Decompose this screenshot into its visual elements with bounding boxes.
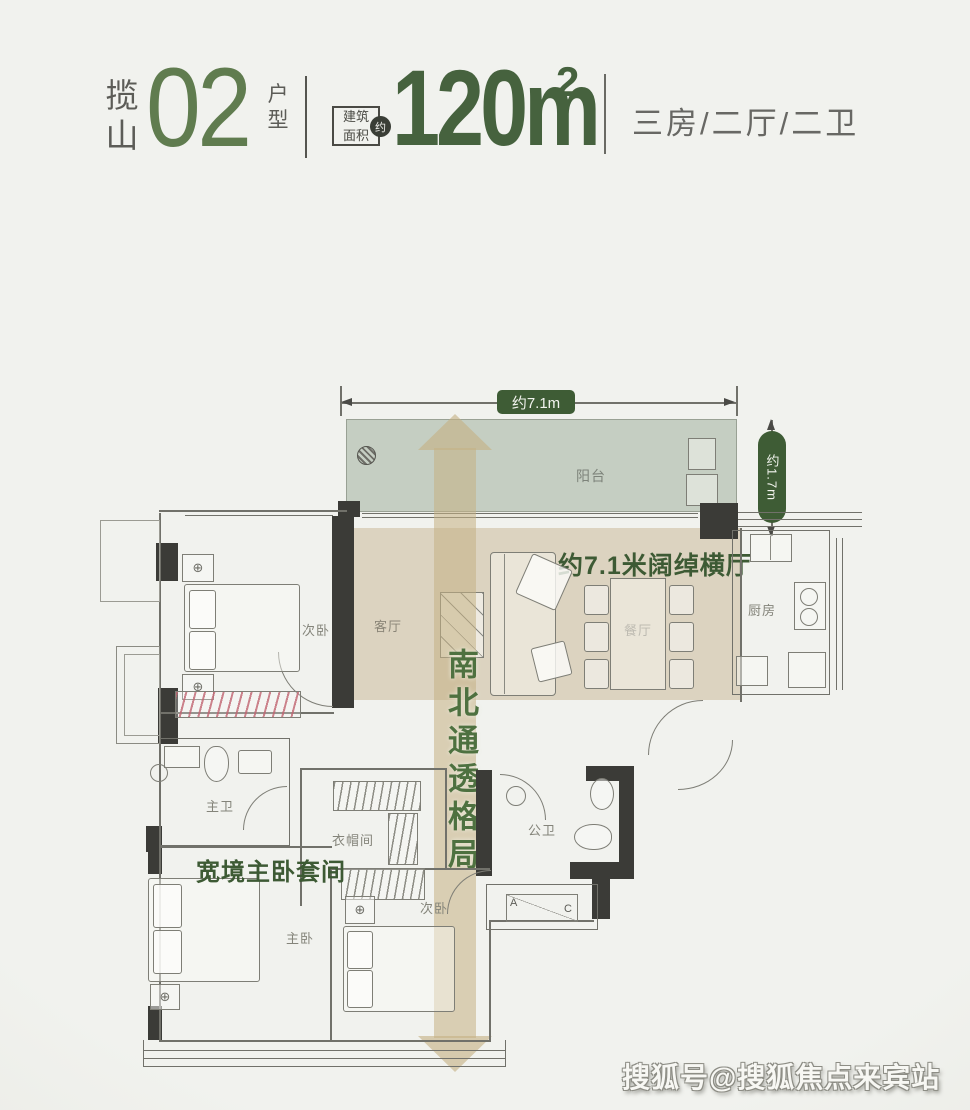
dining-chair bbox=[584, 585, 609, 615]
watermark: 搜狐号@搜狐焦点来宾站 bbox=[622, 1056, 940, 1096]
wide-hall-note: 约7.1米阔绰横厅 bbox=[558, 546, 752, 582]
drain-icon bbox=[357, 446, 376, 465]
kitchen-bay-line-2 bbox=[737, 519, 862, 520]
washer-2 bbox=[686, 474, 718, 506]
burner-icon bbox=[800, 608, 818, 626]
kitchen-window-line bbox=[836, 538, 837, 690]
dim-arrow-up-icon bbox=[767, 419, 775, 430]
brand-char-1: 揽 bbox=[103, 76, 141, 116]
brand-char-2: 山 bbox=[103, 116, 141, 156]
header-divider-2 bbox=[604, 74, 606, 154]
dining-table bbox=[610, 578, 666, 690]
kitchen-bay-line-1 bbox=[737, 512, 862, 513]
washer bbox=[688, 438, 716, 470]
master-bath-label: 主卫 bbox=[206, 796, 234, 815]
dining-chair bbox=[584, 622, 609, 652]
kitchen-sink bbox=[750, 534, 792, 562]
bay-window-line bbox=[143, 1058, 505, 1059]
public-bath-label: 公卫 bbox=[528, 820, 556, 839]
basin-icon bbox=[590, 778, 614, 810]
toilet bbox=[204, 746, 229, 782]
approx-badge: 约 bbox=[370, 116, 391, 137]
dim-right-text: 约1.7m bbox=[763, 454, 782, 501]
living-label: 客厅 bbox=[374, 616, 402, 635]
dining-chair bbox=[584, 659, 609, 689]
bed-pillow bbox=[189, 590, 216, 629]
dining-chair bbox=[669, 622, 694, 652]
balcony-label: 阳台 bbox=[576, 466, 606, 486]
wall-line bbox=[445, 768, 447, 870]
window-line bbox=[185, 515, 333, 516]
bay-window-cap bbox=[505, 1040, 506, 1067]
wall bbox=[338, 501, 360, 517]
basin bbox=[238, 750, 272, 774]
wall-line bbox=[330, 868, 332, 1040]
kitchen-cabinet bbox=[736, 656, 768, 686]
kitchen-window-line bbox=[842, 538, 843, 690]
bedroom-top-label: 次卧 bbox=[302, 620, 330, 639]
master-suite-note: 宽境主卧套间 bbox=[196, 852, 346, 887]
dim-arrow-left-icon bbox=[341, 398, 352, 406]
unit-type-char-1: 户 bbox=[266, 82, 290, 108]
bed-pillow bbox=[153, 884, 182, 928]
step-detail bbox=[100, 520, 160, 602]
unit-number: 02 bbox=[146, 52, 249, 164]
bay-window-line bbox=[143, 1050, 505, 1051]
bed-pillow bbox=[189, 631, 216, 670]
dining-chair bbox=[669, 659, 694, 689]
burner-icon bbox=[800, 588, 818, 606]
wardrobe-hatch bbox=[175, 691, 301, 718]
unit-type-label: 户 型 bbox=[266, 82, 290, 135]
cloakroom-label: 衣帽间 bbox=[332, 830, 374, 849]
dim-right-pill: 约1.7m bbox=[758, 431, 786, 523]
toilet bbox=[574, 824, 612, 850]
nightstand: ⊕ bbox=[182, 554, 214, 582]
header-divider-1 bbox=[305, 76, 307, 158]
header: 揽 山 02 户 型 建筑 面积 约 120m 2 三房/二厅/二卫 bbox=[0, 0, 970, 210]
kitchen-bay-line-3 bbox=[737, 526, 862, 527]
floorplan-page: 揽 山 02 户 型 建筑 面积 约 120m 2 三房/二厅/二卫 约7.1m… bbox=[0, 0, 970, 1110]
wall-line bbox=[489, 920, 491, 1041]
dining-chair bbox=[669, 585, 694, 615]
ac-label-a: A bbox=[510, 897, 517, 909]
ac-label-c: C bbox=[564, 903, 572, 915]
dim-ext-right bbox=[736, 386, 738, 416]
shower-icon bbox=[506, 786, 526, 806]
balcony-door-line-1 bbox=[362, 513, 698, 514]
vanity bbox=[164, 746, 200, 768]
wall-line bbox=[300, 768, 446, 770]
wall bbox=[570, 862, 634, 879]
wall bbox=[332, 516, 354, 708]
kitchen-label: 厨房 bbox=[748, 600, 776, 619]
layout-summary: 三房/二厅/二卫 bbox=[632, 98, 859, 143]
wall-line bbox=[160, 846, 332, 848]
shower-icon bbox=[150, 764, 168, 782]
bedroom-mid-label: 次卧 bbox=[420, 898, 448, 917]
bed-pillow bbox=[153, 930, 182, 974]
balcony-door-line-2 bbox=[362, 517, 698, 518]
kitchen-cabinet bbox=[788, 652, 826, 688]
bay-window-line bbox=[143, 1066, 505, 1067]
nightstand: ⊕ bbox=[345, 896, 375, 924]
bay-window-cap bbox=[143, 1040, 144, 1067]
sofa-back-line bbox=[504, 554, 505, 694]
dim-arrow-right-icon bbox=[724, 398, 735, 406]
master-bedroom-label: 主卧 bbox=[286, 928, 314, 947]
shaft-detail bbox=[124, 654, 160, 736]
entry-door-arc bbox=[678, 740, 733, 790]
brand-name: 揽 山 bbox=[103, 76, 141, 157]
wall-line bbox=[159, 510, 347, 512]
area-value: 120m bbox=[392, 54, 648, 162]
bed-pillow bbox=[347, 931, 373, 969]
wardrobe-hatch bbox=[388, 813, 418, 865]
area-sup: 2 bbox=[556, 58, 579, 106]
wardrobe-hatch bbox=[333, 781, 421, 811]
bed-pillow bbox=[347, 970, 373, 1008]
unit-type-char-2: 型 bbox=[266, 108, 290, 134]
wall bbox=[476, 770, 492, 876]
ns-arrow-up-icon bbox=[418, 414, 492, 450]
dim-top-pill: 约7.1m bbox=[497, 390, 575, 414]
wall-line bbox=[159, 1040, 491, 1042]
nightstand: ⊕ bbox=[150, 984, 180, 1010]
kitchen-sink-divider bbox=[770, 536, 771, 560]
balcony-zone bbox=[346, 419, 737, 512]
